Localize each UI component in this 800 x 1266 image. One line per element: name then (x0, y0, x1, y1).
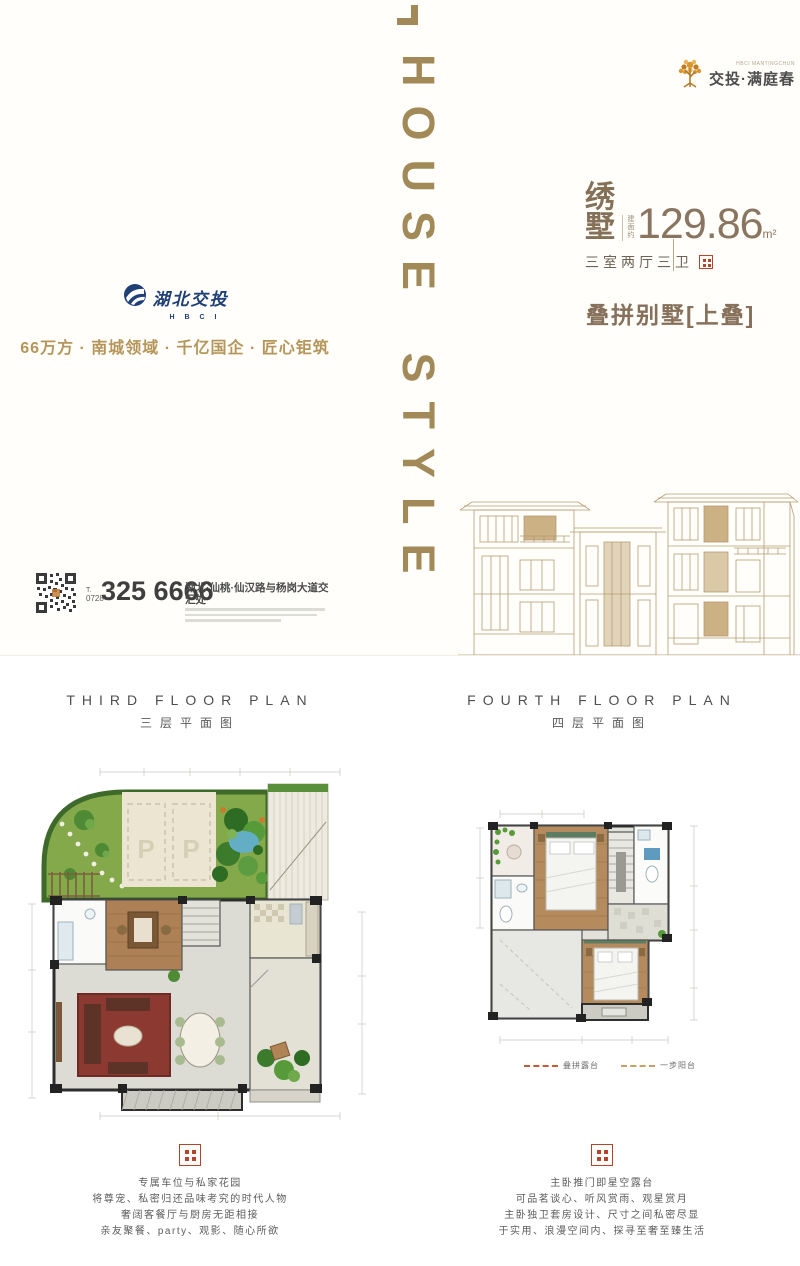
brand-logo: HBCI MANTINGCHUN 交投·满庭春 (655, 55, 795, 94)
seal-right (452, 1144, 752, 1166)
unit-name: 绣墅 (585, 183, 622, 243)
poster-section: HOUSE STYLE (0, 0, 800, 656)
page: HOUSE STYLE (0, 0, 800, 1266)
third-floor-plan: P P (22, 762, 370, 1126)
legend-item-terrace: 叠拼露台 (524, 1060, 599, 1071)
partial-letter-glyph (397, 18, 418, 25)
third-floor-description: 专属车位与私家花园 将尊宠、私密归还品味考究的时代人物 奢阔客餐厅与厨房无距相接… (40, 1176, 340, 1240)
area-value: 129.86 (637, 206, 763, 243)
plan-legend: 叠拼露台 一步阳台 (460, 1060, 760, 1071)
disclaimer-lines (185, 608, 325, 625)
fourth-floor-plan (472, 808, 722, 1054)
tree-icon (675, 55, 705, 94)
area-unit: m² (763, 227, 777, 241)
floor-plans-section: THIRD FLOOR PLAN 三层平面图 FOURTH FLOOR PLAN… (0, 656, 800, 1266)
legend-item-balcony: 一步阳台 (621, 1060, 696, 1071)
globe-icon (122, 282, 148, 313)
third-floor-title-cn: 三层平面图 (40, 714, 340, 731)
qr-code (35, 572, 77, 619)
brand-name: 交投·满庭春 (709, 68, 795, 89)
layout-text: 三室两厅三卫 (585, 252, 693, 272)
developer-name: 湖北交投 (153, 285, 229, 310)
partial-letter-glyph (411, 5, 418, 19)
decor-vline (673, 239, 674, 271)
address: 湖北·仙桃·仙汉路与杨岗大道交汇处 (185, 582, 335, 606)
unit-info: 绣墅 建面约 129.86 m² 三室两厅三卫 (585, 183, 775, 272)
developer-abbr: H B C I (65, 314, 325, 321)
contact-block: T. 0728 325 6666 湖北·仙桃·仙汉路与杨岗大道交汇处 (35, 570, 335, 640)
fourth-floor-description: 主卧推门即星空露台 可品茗谈心、听风赏雨、观星赏月 主卧独卫套房设计、尺寸之间私… (452, 1176, 752, 1240)
svg-text:P: P (182, 834, 199, 864)
developer-logo: 湖北交投 H B C I (25, 282, 325, 321)
vertical-title: HOUSE STYLE (392, 54, 444, 754)
tagline: 66万方 · 南城领域 · 千亿国企 · 匠心钜筑 (20, 334, 330, 358)
area-label: 建面约 (622, 215, 635, 241)
fourth-floor-title-en: FOURTH FLOOR PLAN (452, 692, 752, 708)
seal-stamp-icon (699, 255, 713, 269)
legend-dash-red (524, 1065, 558, 1067)
svg-text:P: P (137, 834, 154, 864)
product-type: 叠拼别墅[上叠] (586, 296, 770, 330)
third-floor-title-en: THIRD FLOOR PLAN (40, 692, 340, 708)
seal-left (40, 1144, 340, 1166)
fourth-floor-title-cn: 四层平面图 (452, 714, 752, 731)
brand-sub-text: HBCI MANTINGCHUN (709, 61, 795, 67)
legend-dash-gold (621, 1065, 655, 1067)
building-sketch (458, 476, 800, 655)
